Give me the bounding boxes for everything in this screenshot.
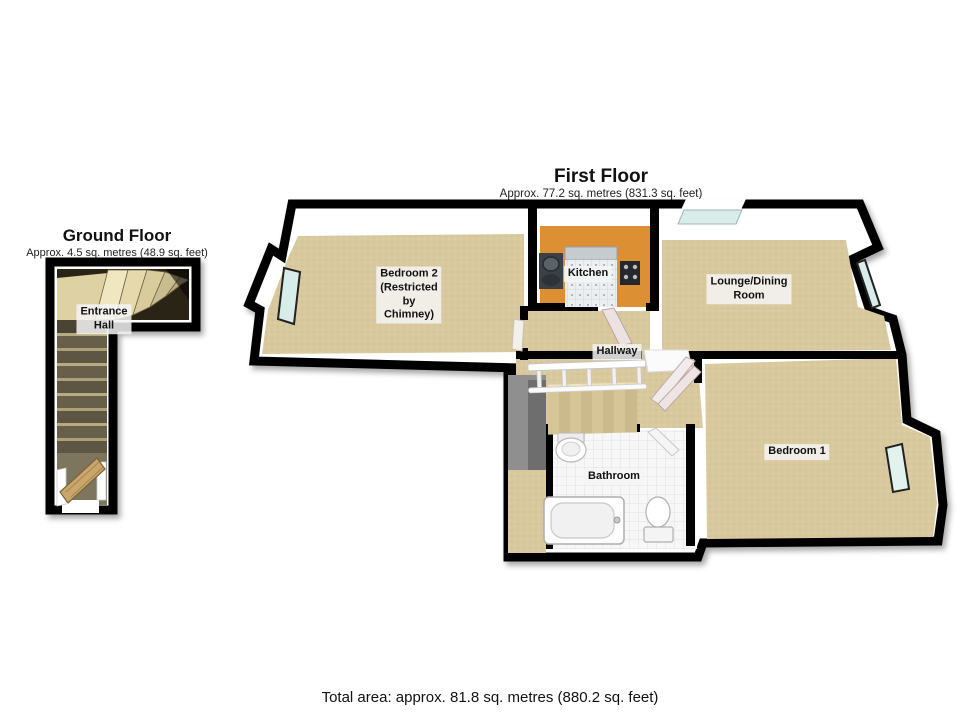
wall-kitchen-bottom-right: [646, 303, 659, 311]
room-label-bathroom: Bathroom: [584, 469, 644, 485]
room-label-kitchen: Kitchen: [564, 266, 612, 282]
basin: [556, 433, 586, 462]
wall-bedroom2-hallway-top: [520, 306, 528, 320]
wall-bedroom2-kitchen: [528, 204, 537, 308]
kitchen-hob: [620, 261, 640, 285]
kitchen-sink-basin: [543, 257, 559, 271]
lounge-top-window-glass: [678, 210, 742, 224]
wall-bathroom-right: [686, 424, 695, 546]
first-floor-plan: [249, 199, 943, 557]
wall-kitchen-lounge: [650, 204, 659, 308]
floorplan-page: First Floor Approx. 77.2 sq. metres (831…: [0, 0, 980, 712]
bath-tap: [614, 517, 620, 523]
wall-lounge-bedroom1: [688, 351, 902, 359]
room-label-bedroom-1: Bedroom 1: [764, 444, 829, 460]
room-label-bedroom-2: Bedroom 2 (Restricted by Chimney): [376, 267, 441, 324]
room-label-hallway: Hallway: [593, 344, 642, 360]
bedroom-2-door-leaf: [512, 319, 524, 351]
room-label-entrance-hall: Entrance Hall: [76, 304, 131, 334]
bathtub: [544, 497, 624, 544]
ground-floor-plan: [50, 262, 196, 513]
stairwell-shadow: [528, 380, 546, 470]
straight-stair-treads: [57, 333, 107, 453]
toilet: [644, 497, 673, 542]
kitchen-sink-bowl: [542, 274, 560, 286]
floorplan-drawing: [0, 0, 980, 712]
room-label-lounge-dining: Lounge/Dining Room: [707, 274, 792, 304]
kitchen-counter: [565, 247, 617, 260]
